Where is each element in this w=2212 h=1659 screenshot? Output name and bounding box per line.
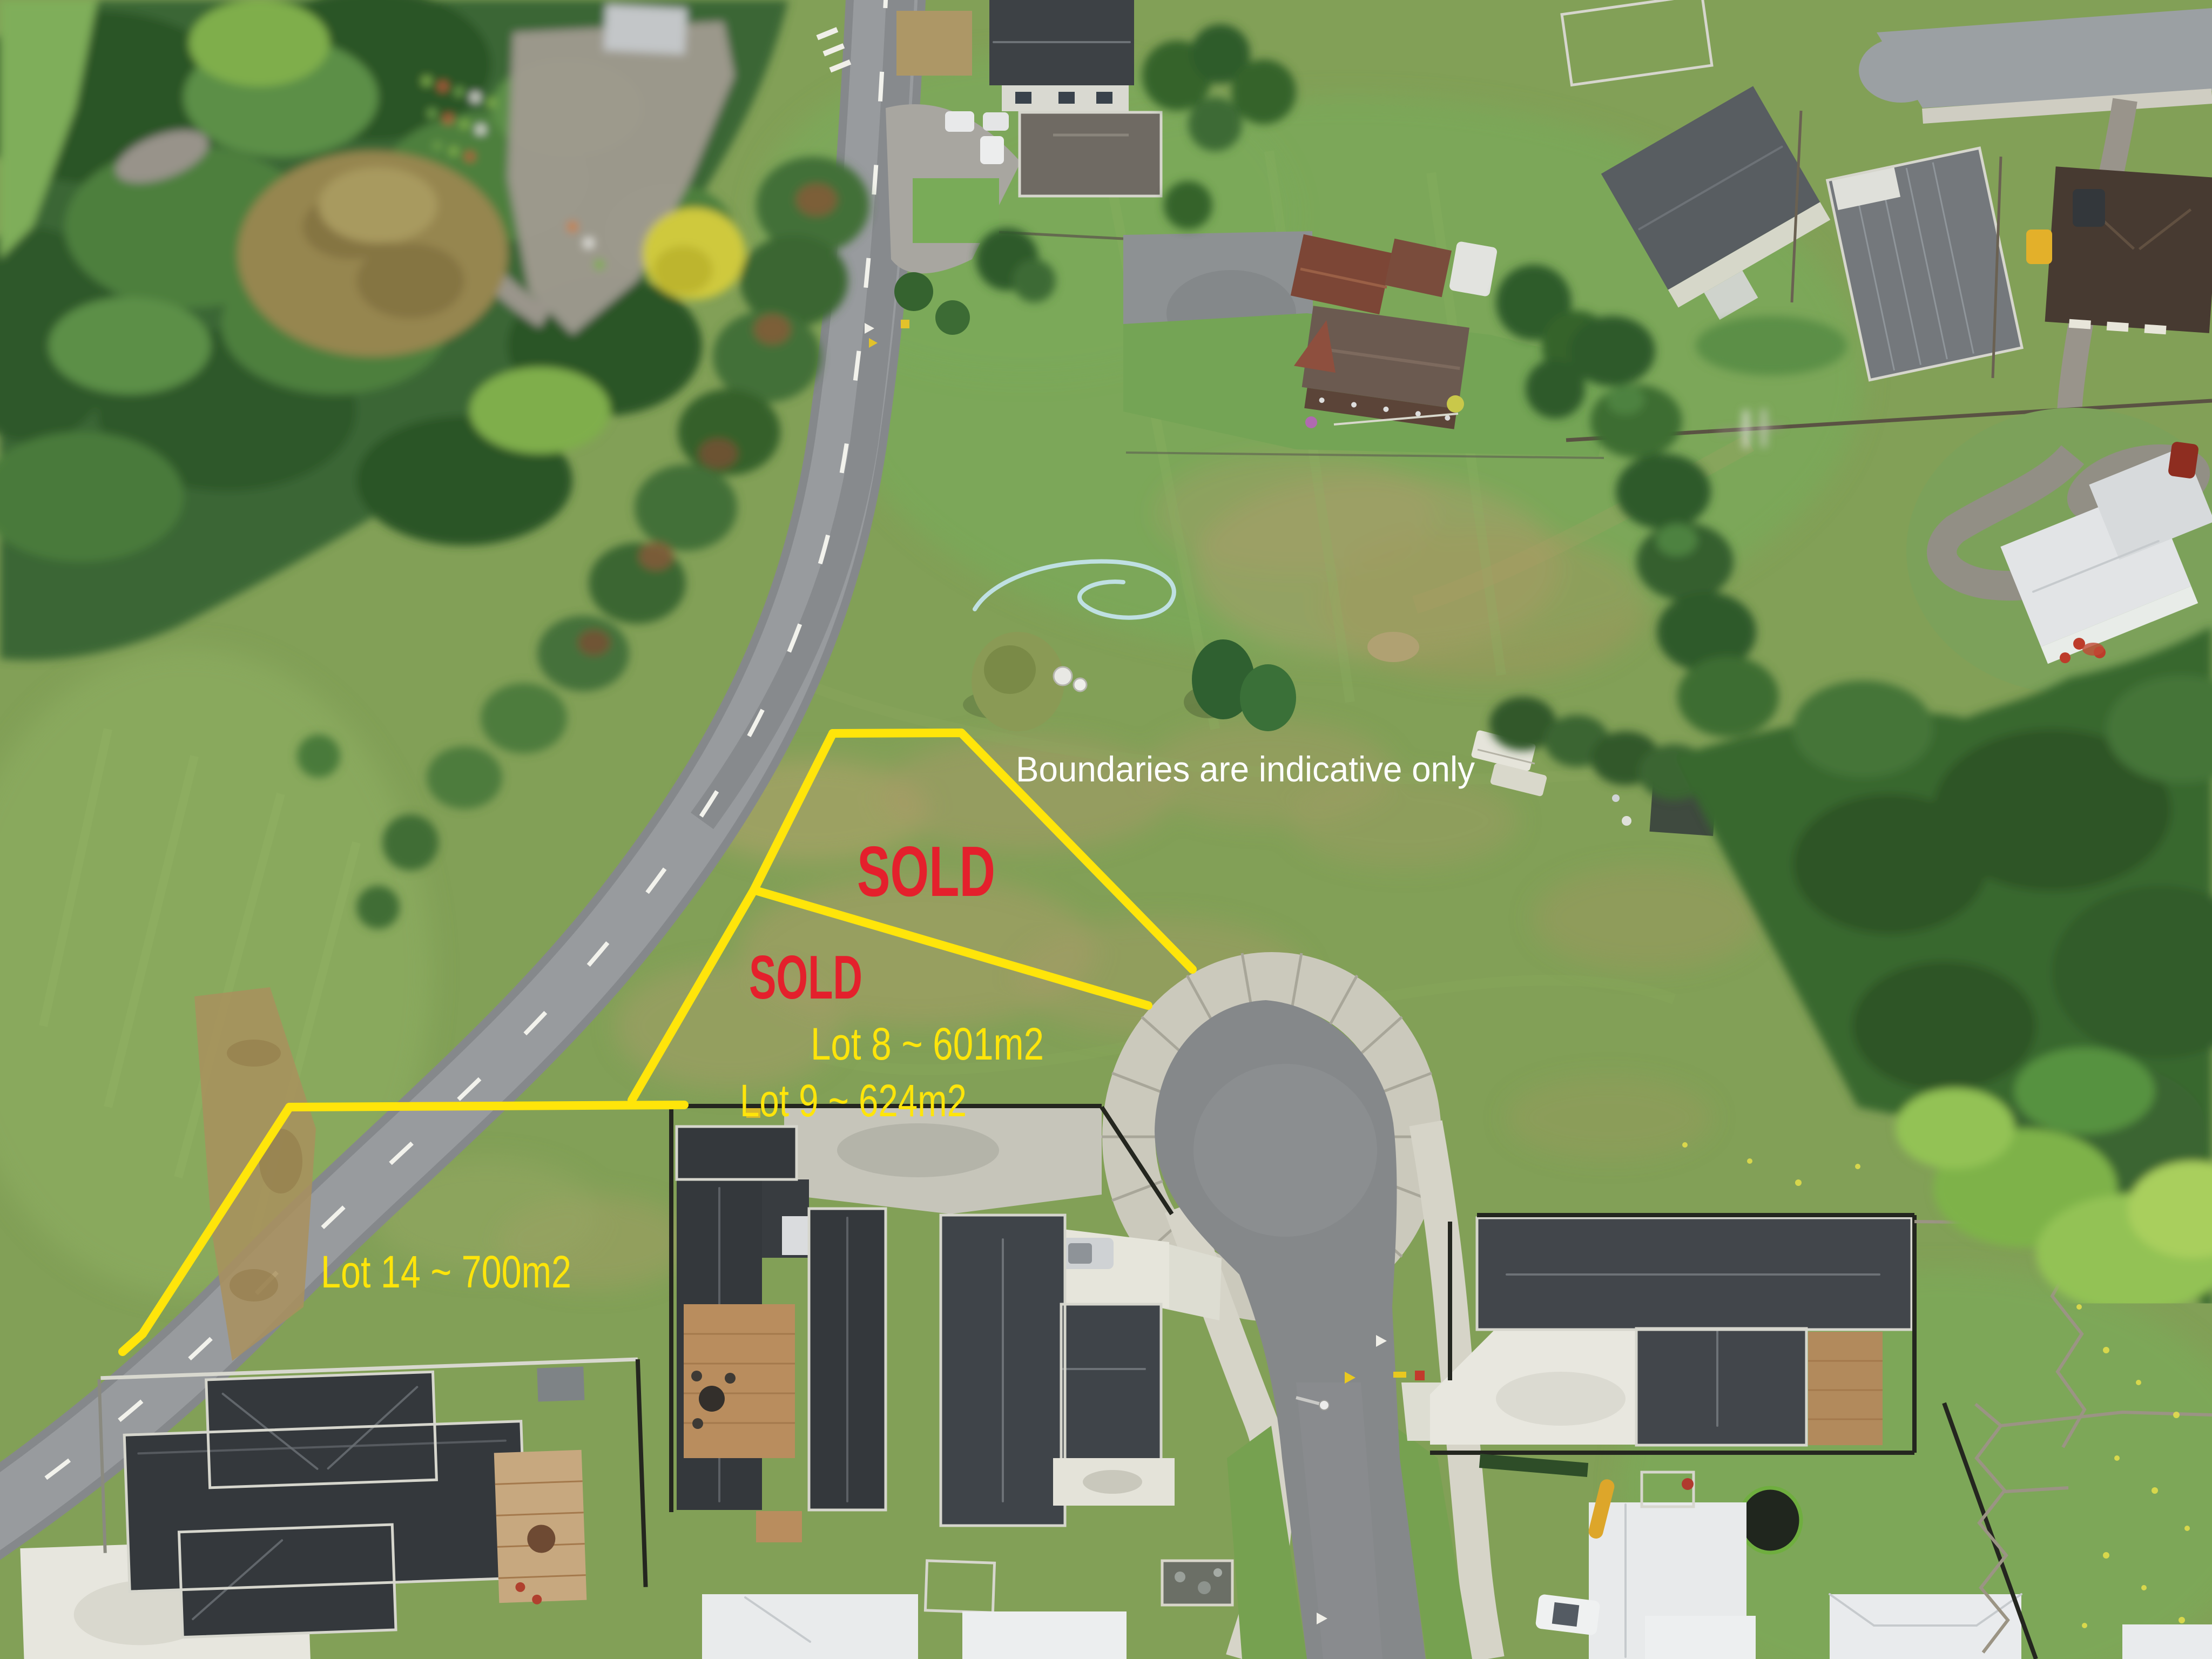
skylight bbox=[782, 1216, 810, 1255]
dirt-patch bbox=[896, 11, 972, 76]
lot-14-north-boundary bbox=[289, 1105, 684, 1107]
trampoline bbox=[1739, 1488, 1801, 1553]
lot-9-area-label: Lot 9 ~ 624m2 bbox=[740, 1075, 967, 1126]
house-d bbox=[1430, 1215, 1914, 1470]
car-1 bbox=[945, 111, 974, 132]
car-dark bbox=[2073, 189, 2105, 227]
field-bush-2 bbox=[1240, 664, 1296, 731]
white-roof-sw bbox=[702, 1594, 918, 1659]
car-2 bbox=[983, 112, 1009, 131]
well-ring bbox=[1054, 667, 1072, 685]
lot-8-sold-badge: SOLD bbox=[857, 832, 995, 911]
nursery-building bbox=[604, 4, 687, 55]
white-roof-sw2 bbox=[962, 1611, 1127, 1659]
aerial-photo: SOLD Lot 8 ~ 601m2 SOLD Lot 9 ~ 624m2 Lo… bbox=[0, 0, 2212, 1659]
lot-9-sold-badge: SOLD bbox=[749, 943, 862, 1012]
car-yellow bbox=[2026, 230, 2052, 264]
well-ring-small bbox=[1074, 678, 1087, 691]
hedge-d bbox=[1480, 1461, 1588, 1470]
boundaries-disclaimer: Boundaries are indicative only bbox=[1016, 749, 1475, 789]
deck-a bbox=[494, 1450, 587, 1606]
lot-8-area-label: Lot 8 ~ 601m2 bbox=[811, 1019, 1044, 1069]
car-red bbox=[2168, 441, 2199, 479]
caravan bbox=[1449, 241, 1498, 297]
rock-garden bbox=[1162, 1561, 1232, 1605]
shed-a bbox=[537, 1367, 584, 1402]
van bbox=[980, 136, 1004, 164]
aerial-photo-canvas: SOLD Lot 8 ~ 601m2 SOLD Lot 9 ~ 624m2 Lo… bbox=[0, 0, 2212, 1659]
deck-d bbox=[1808, 1332, 1883, 1445]
corner-roof bbox=[2122, 1624, 2212, 1659]
lot-14-area-label: Lot 14 ~ 700m2 bbox=[321, 1246, 571, 1297]
deck-b bbox=[684, 1304, 795, 1458]
house-e-roof bbox=[1645, 1616, 1756, 1659]
dirt-spot bbox=[1367, 632, 1419, 662]
brown-hip-house bbox=[2045, 166, 2212, 338]
house-c bbox=[941, 1215, 1175, 1526]
